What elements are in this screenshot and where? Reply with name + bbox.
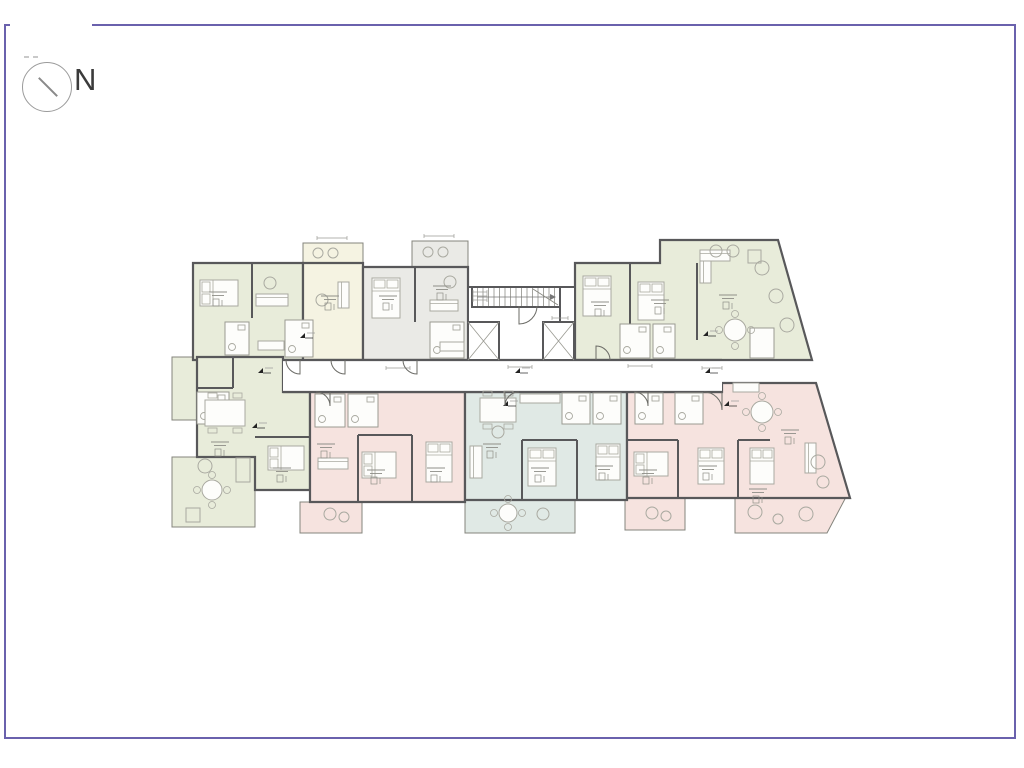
floorplan-svg — [0, 0, 1024, 768]
kitchen-counter — [733, 383, 759, 392]
bathroom — [562, 393, 590, 424]
sofa — [700, 261, 711, 283]
bed — [362, 452, 396, 478]
terrace-top-cream — [303, 243, 363, 265]
bathroom — [675, 393, 703, 424]
terrace-upper-left — [172, 357, 197, 420]
bathroom — [225, 322, 249, 355]
bed — [426, 442, 452, 482]
staircase — [472, 287, 560, 307]
bathroom — [430, 322, 464, 358]
bathroom — [653, 324, 675, 358]
bathroom — [593, 393, 621, 424]
bathroom — [285, 320, 313, 357]
dimension-text — [424, 234, 454, 238]
terrace-top-grey — [412, 241, 468, 267]
bathroom — [348, 394, 378, 427]
elevator-left — [468, 322, 499, 360]
bathroom — [620, 324, 650, 358]
sofa — [338, 282, 349, 308]
bed — [750, 448, 774, 484]
bathroom — [635, 393, 663, 424]
sofa — [470, 446, 482, 478]
terrace-bottom-pink-2 — [625, 497, 685, 530]
bed — [372, 278, 400, 318]
terrace-bottom-pink-3 — [735, 497, 846, 533]
terrace-bottom-pink-1 — [300, 502, 362, 533]
elevator-right — [543, 322, 574, 360]
sofa — [430, 300, 458, 311]
corridor — [283, 360, 722, 392]
bed — [634, 452, 668, 476]
bed — [268, 446, 304, 470]
bed — [583, 276, 611, 316]
kitchen-counter — [258, 341, 284, 350]
sofa — [318, 458, 348, 469]
floor-plan-page: N — [0, 0, 1024, 768]
sofa — [256, 294, 288, 306]
kitchen-counter — [520, 394, 560, 403]
sofa — [700, 250, 730, 261]
dimension-text — [317, 236, 347, 240]
terrace-bottom-teal — [465, 500, 575, 533]
kitchen-counter — [440, 342, 464, 351]
bed — [528, 448, 556, 486]
